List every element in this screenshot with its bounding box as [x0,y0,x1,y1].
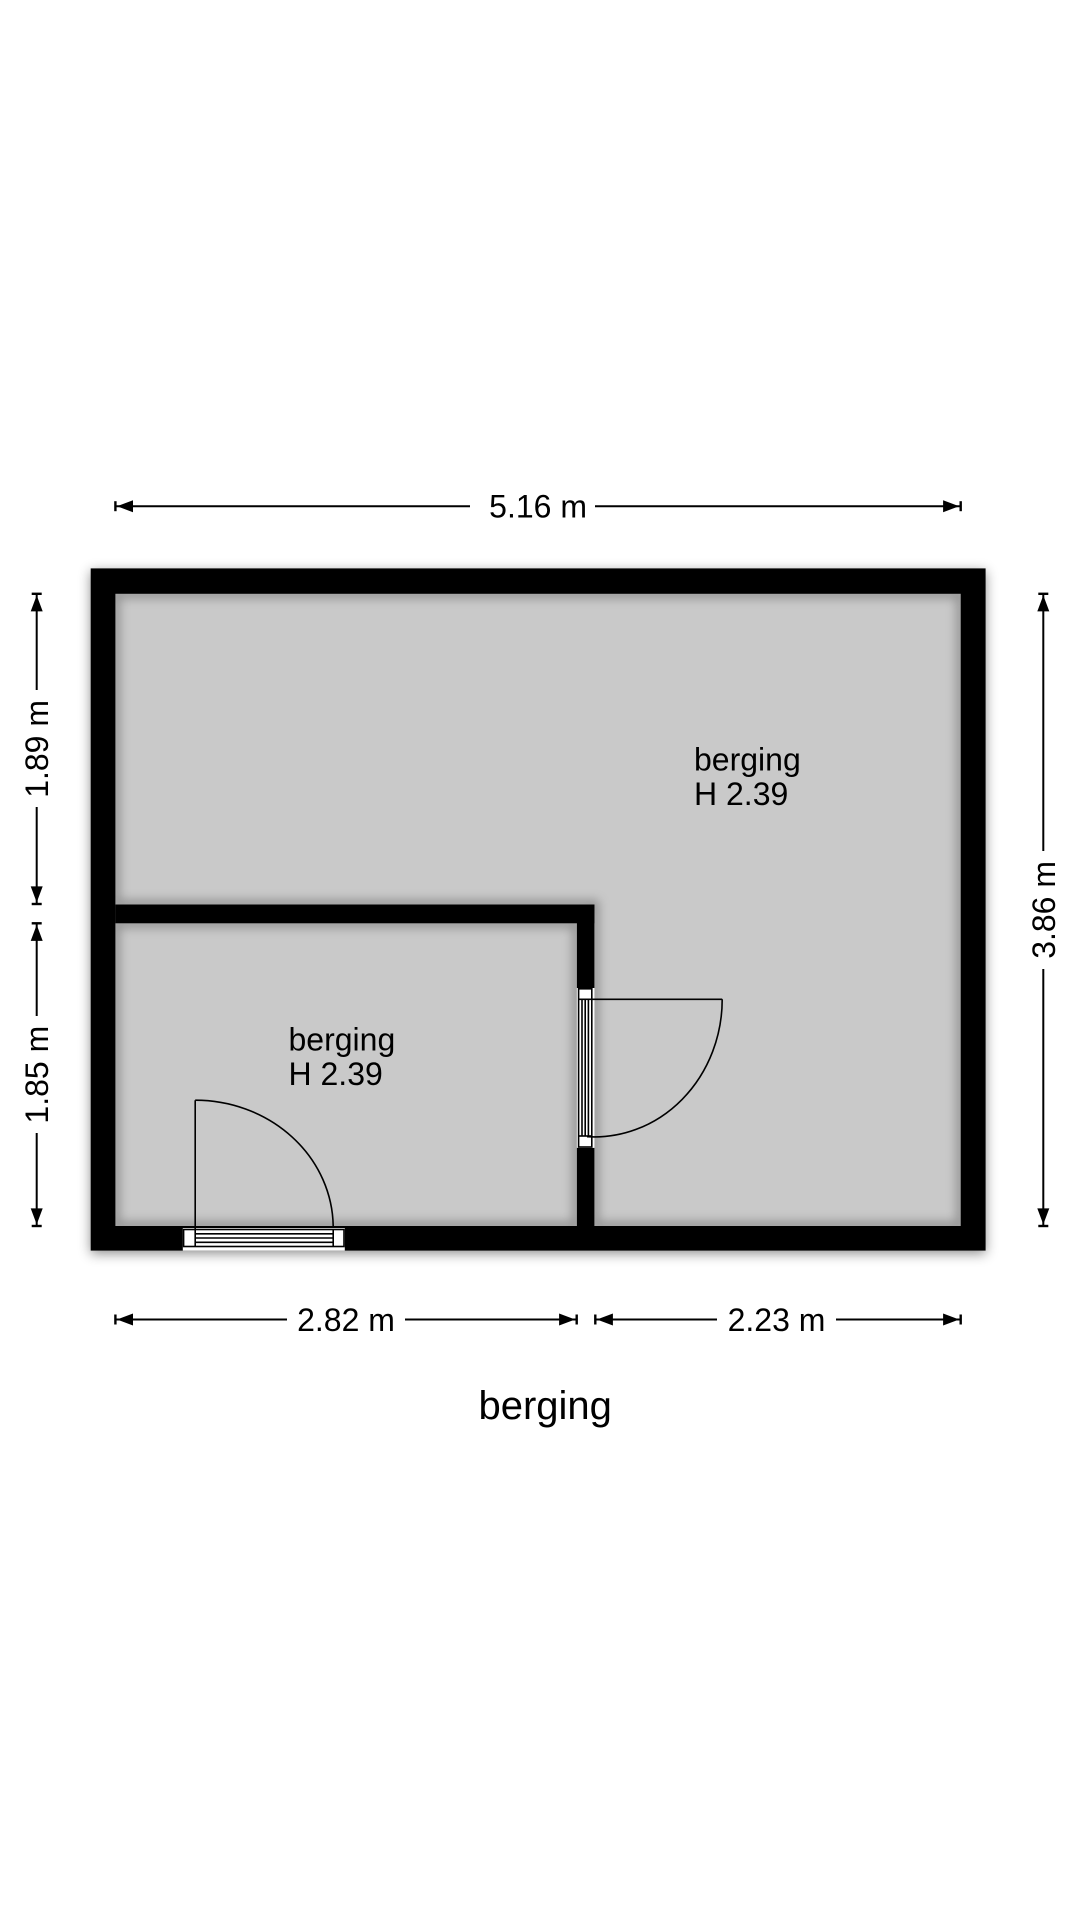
svg-text:2.23 m: 2.23 m [728,1302,826,1338]
svg-text:3.86 m: 3.86 m [1026,861,1062,959]
svg-text:1.89 m: 1.89 m [19,700,55,798]
svg-text:H 2.39: H 2.39 [694,776,788,812]
svg-text:1.85 m: 1.85 m [19,1026,55,1124]
svg-text:5.16 m: 5.16 m [489,489,587,525]
svg-text:H 2.39: H 2.39 [289,1056,383,1092]
svg-text:berging: berging [478,1384,611,1428]
svg-text:2.82 m: 2.82 m [297,1302,395,1338]
svg-text:berging: berging [694,742,801,778]
svg-text:berging: berging [289,1022,396,1058]
